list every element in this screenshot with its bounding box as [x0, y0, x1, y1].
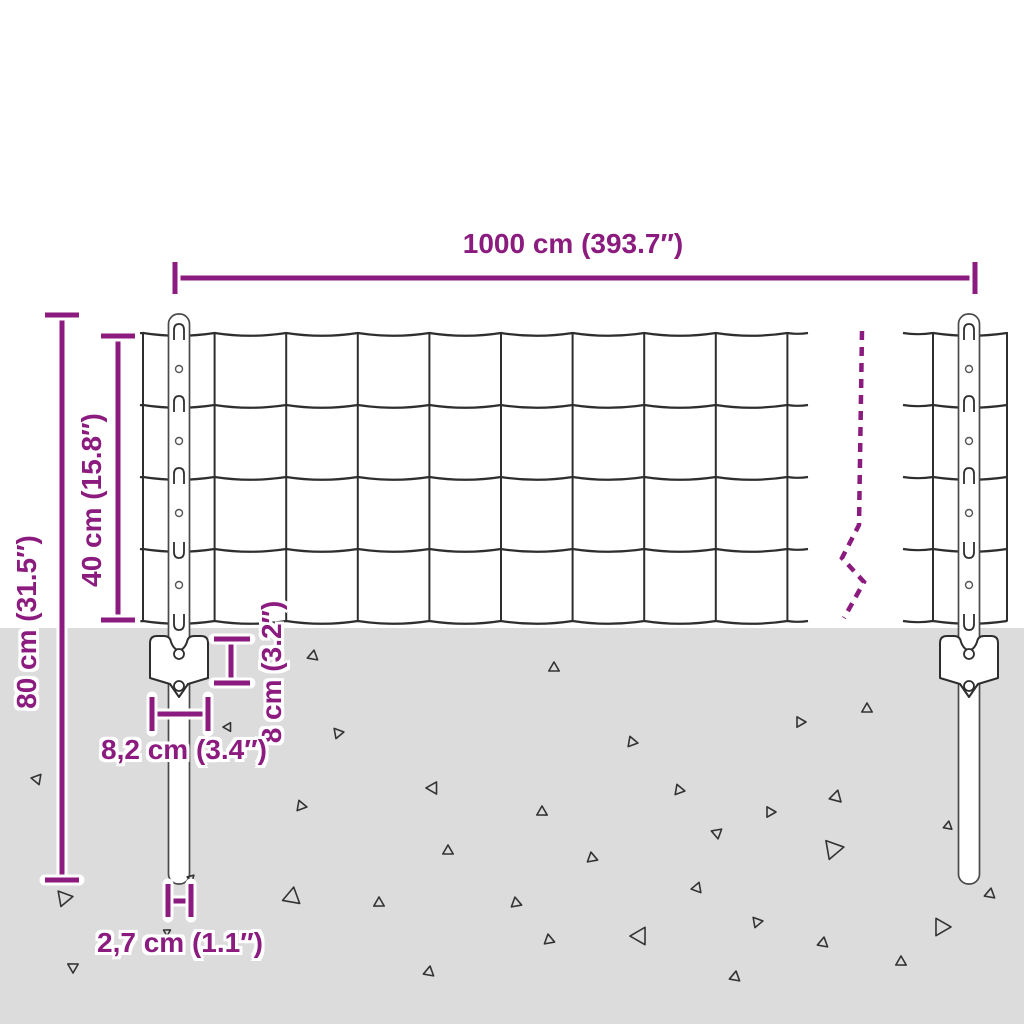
dimension-label-anchor-width: 8,2 cm (3.4″) [101, 736, 267, 764]
dimension-label-post-diameter: 2,7 cm (1.1″) [97, 929, 263, 957]
fence-break-indicator [842, 331, 864, 618]
fence-posts [169, 314, 980, 884]
dimension-label-fence-length: 1000 cm (393.7″) [463, 230, 683, 258]
fence-diagram-drawing [0, 0, 1024, 1024]
mesh-wires [140, 332, 1007, 624]
fence-dimension-diagram: 1000 cm (393.7″) 40 cm (15.8″) 80 cm (31… [0, 0, 1024, 1024]
dimension-label-anchor-height: 8 cm (3.2″) [258, 601, 286, 744]
dimension-label-post-height: 80 cm (31.5″) [13, 535, 41, 709]
dimension-label-mesh-height: 40 cm (15.8″) [78, 413, 106, 587]
